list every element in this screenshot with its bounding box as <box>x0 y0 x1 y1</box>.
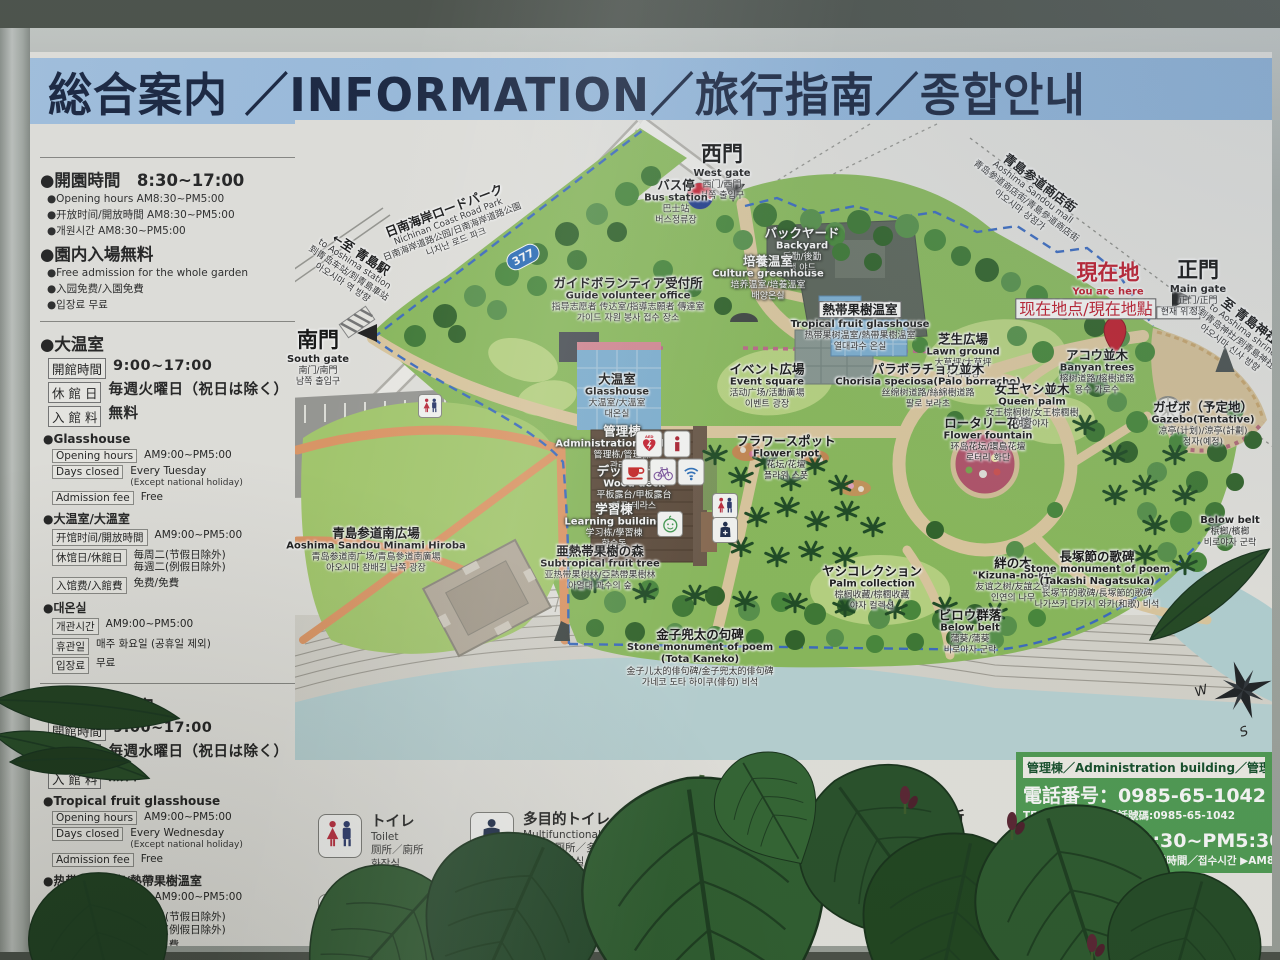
sidebar-kv-label: 休 館 日 <box>48 744 101 765</box>
sidebar-kv-value: AM9:00~PM5:00 <box>155 529 243 542</box>
sidebar-kv-label: 入 館 料 <box>48 768 101 789</box>
sidebar-kv-value: 免费/免費 <box>134 577 180 590</box>
sidebar-kv-row: 入馆费/入館費免费/免費 <box>52 577 296 594</box>
legend-en: Café <box>711 831 764 845</box>
sidebar-kv-value-line: 무료 <box>96 657 115 670</box>
sidebar-kv-row: 开馆时间/開放時間AM9:00~PM5:00 <box>52 891 296 908</box>
legend-text: カフェCafé餐厅／餐廳카페 <box>711 814 764 872</box>
bus-stop-logo <box>687 183 713 209</box>
sidebar-kv-label: 休馆日/休館日 <box>52 549 127 566</box>
sidebar-kv-row: Opening hoursAM9:00~PM5:00 <box>52 449 296 463</box>
sidebar-kv-label: Days closed <box>52 827 123 841</box>
legend-jp: ベビーベッド <box>371 894 458 911</box>
legend-kr: 카페 <box>711 858 764 872</box>
gazebo-icon <box>1155 397 1181 423</box>
sidebar-divider <box>40 683 296 684</box>
sidebar-heading: ●대온실 <box>43 599 296 616</box>
sidebar-kv-value-line: 免费/免費 <box>134 577 180 590</box>
sidebar-kv-row: 개관시간AM9:00~PM5:00 <box>52 618 296 635</box>
sidebar-kv-row: Days closedEvery Wednesday(Except nation… <box>52 827 296 850</box>
legend-item-cafe: カフェCafé餐厅／餐廳카페 <box>658 814 764 872</box>
sidebar-kv-value-line: 無料 <box>108 406 138 423</box>
legend-cn: 餐厅／餐廳 <box>711 844 764 858</box>
sidebar-kv-value-line: 매주 화요일 (공휴일 제외) <box>96 638 211 651</box>
sidebar-kv-value-line: AM9:00~PM5:00 <box>106 618 194 631</box>
sidebar-kv-value: AM9:00~PM5:00 <box>144 449 232 462</box>
sidebar-kv-row: 入 館 料無料 <box>48 768 296 789</box>
baby-icon <box>318 894 362 938</box>
sidebar-kv-value-line2: 毎週二(例假日除外) <box>134 561 226 574</box>
sidebar-kv-label: 入馆费/入館費 <box>52 577 127 594</box>
manager-note: 管理者：宮崎県 管理员／管理員 관리자 <box>1040 862 1142 898</box>
sidebar-kv-label: Opening hours <box>52 449 137 463</box>
sidebar-kv-value-line: 9:00~17:00 <box>113 720 212 737</box>
legend-text: トイレToilet厕所／廁所화장실 <box>371 814 424 872</box>
sidebar-kv-row: 休馆日/休館日毎周三(节假日除外)毎週三(例假日除外) <box>52 911 296 936</box>
sidebar-kv-value-line2: 毎週三(例假日除外) <box>134 924 226 937</box>
legend-cn: 多用途厕所／多用途廁所 <box>523 842 639 856</box>
sidebar-kv-value: Every Wednesday(Except national holiday) <box>130 827 243 850</box>
legend-en: Toilet <box>371 831 424 845</box>
manager-line2: 管理员／管理員 <box>1054 883 1142 898</box>
sidebar-kv-value: Free <box>141 853 163 866</box>
sidebar-kv-label: 開館時間 <box>48 720 106 741</box>
sidebar-heading: ●大温室 <box>40 331 296 355</box>
sidebar-kv-value: Free <box>141 491 163 504</box>
legend-cn: AED设施／AED設施 <box>873 840 969 854</box>
legend-jp: カフェ <box>711 814 764 831</box>
sidebar-kv-value: AM9:00~PM5:00 <box>144 811 232 824</box>
sidebar-kv-value-line: 9:00~17:00 <box>113 358 212 375</box>
sidebar-subline: ●开放时间/開放時間 AM8:30~PM5:00 <box>47 207 296 222</box>
sidebar-kv-value-line: 毎週水曜日（祝日は除く） <box>108 744 288 761</box>
svg-text:AED: AED <box>645 435 654 439</box>
sidebar-kv-value: 9:00~17:00 <box>113 358 212 375</box>
contact-hours: 受付時間 AM8:30~PM5:30 <box>1023 826 1265 853</box>
sidebar-kv-row: 입장료무료 <box>52 657 296 674</box>
legend-cn: 婴儿床／嬰兒床 <box>371 924 458 938</box>
legend-kr: 자동제세동기 <box>873 854 969 868</box>
sidebar-subline: ●Opening hours AM8:30~PM5:00 <box>47 193 296 205</box>
legend-item-wifi: Wi-FiスポットWi-Fi spotWi-Fi 设施／Wi-Fi 設施Wi-F… <box>624 894 786 946</box>
legend-text: Wi-FiスポットWi-Fi spotWi-Fi 设施／Wi-Fi 設施Wi-F… <box>677 894 786 946</box>
title-band: 総合案内 ／INFORMATION／旅行指南／종합안내 <box>30 58 1272 124</box>
sidebar-divider <box>40 321 296 322</box>
sidebar-kv-value: AM9:00~PM5:00 <box>155 891 243 904</box>
sidebar-subline: ●Free admission for the whole garden <box>47 267 296 279</box>
legend-kr: Wi-Fi 존 <box>677 938 786 946</box>
sidebar-kv-value: 毎周二(节假日除外)毎週二(例假日除外) <box>134 549 226 574</box>
sidebar-kv-label: 开馆时间/開放時間 <box>52 529 148 546</box>
sidebar-kv-row: 休 館 日毎週火曜日（祝日は除く） <box>48 382 296 403</box>
sidebar-kv-value: AM9:00~PM5:00 <box>106 618 194 631</box>
cafe-icon <box>658 814 702 858</box>
sidebar-heading: ●热带果树温室/熱帶果樹溫室 <box>43 872 296 889</box>
manager-line: 管理者：宮崎県 <box>1040 862 1142 883</box>
sidebar-divider <box>40 157 296 158</box>
legend-text: ベビーベッドBaby crib婴儿床／嬰兒床유아용 침대 <box>371 894 458 946</box>
sidebar-kv-row: Admission feeFree <box>52 853 296 867</box>
aed-icon: AED <box>636 431 663 458</box>
bicycle-icon <box>470 894 514 938</box>
sidebar-kv-label: Days closed <box>52 465 123 479</box>
sidebar-kv-label: Admission fee <box>52 491 134 505</box>
bicycle-icon <box>650 459 677 486</box>
sidebar-subline: ●입장료 무료 <box>47 297 296 312</box>
sidebar-kv-row: Admission feeFree <box>52 491 296 505</box>
sidebar-heading: ●熱帯果樹温室 <box>40 693 296 717</box>
sidebar-kv-row: Days closedEvery Tuesday(Except national… <box>52 465 296 488</box>
sidebar-kv-label: 休馆日/休館日 <box>52 911 127 928</box>
hours-sidebar: ●開園時間 8:30~17:00●Opening hours AM8:30~PM… <box>40 148 296 946</box>
contact-phone: 電話番号：0985-65-1042 <box>1023 781 1265 808</box>
legend-kr: 유아용 침대 <box>371 938 458 946</box>
legend-jp: AED設置場所 <box>873 810 969 827</box>
page-title: 総合案内 ／INFORMATION／旅行指南／종합안내 <box>48 57 1086 124</box>
legend-kr: 화장실 <box>371 858 424 872</box>
sidebar-kv-row: 休 館 日毎週水曜日（祝日は除く） <box>48 744 296 765</box>
legend-en: Wi-Fi spot <box>677 911 786 925</box>
legend-kr: 자전거 대여 <box>523 938 639 946</box>
sidebar-kv-row: 入馆费/入館費免费/免費 <box>52 939 296 946</box>
sidebar-kv-row: 開館時間9:00~17:00 <box>48 720 296 741</box>
sidebar-kv-note: (Except national holiday) <box>130 478 243 489</box>
sidebar-kv-value-line: AM9:00~PM5:00 <box>144 449 232 462</box>
sidebar-kv-label: 開館時間 <box>48 358 106 379</box>
sidebar-kv-label: 入 館 料 <box>48 406 101 427</box>
sidebar-subline: ●개원시간 AM8:30~PM5:00 <box>47 223 296 238</box>
photo-of-information-board: 総合案内 ／INFORMATION／旅行指南／종합안내 ●開園時間 8:30~1… <box>0 0 1280 960</box>
sidebar-kv-label: Admission fee <box>52 853 134 867</box>
rotary-flowerbed-art <box>953 432 1017 496</box>
sidebar-kv-note: (Except national holiday) <box>130 840 243 851</box>
legend-en: Baby crib <box>371 911 458 925</box>
legend-item-multi-toilet: 多目的トイレMultifunctional toilet多用途厕所／多用途廁所다… <box>470 812 639 870</box>
sidebar-kv-value: 9:00~17:00 <box>113 720 212 737</box>
sidebar-kv-value-line: AM9:00~PM5:00 <box>144 811 232 824</box>
sidebar-kv-label: 入馆费/入館費 <box>52 939 127 946</box>
legend-jp: レンタサイクル <box>523 894 639 911</box>
sidebar-kv-row: 休馆日/休館日毎周二(节假日除外)毎週二(例假日除外) <box>52 549 296 574</box>
legend-en: Multifunctional toilet <box>523 829 639 843</box>
sidebar-kv-row: Opening hoursAM9:00~PM5:00 <box>52 811 296 825</box>
park-map: 377 W S <box>295 120 1272 760</box>
multi-toilet-icon <box>470 812 514 856</box>
sidebar-section: ●熱帯果樹温室開館時間9:00~17:00休 館 日毎週水曜日（祝日は除く）入 … <box>40 693 296 946</box>
legend-kr: 다목적 화장실 <box>523 856 639 870</box>
aed-icon: AED <box>820 810 864 854</box>
svg-text:AED: AED <box>835 816 849 823</box>
legend-cn: 厕所／廁所 <box>371 844 424 858</box>
sidebar-kv-value-line: 毎周三(节假日除外) <box>134 911 226 924</box>
sidebar-kv-value-line: Every Tuesday <box>130 465 243 478</box>
sidebar-heading: ●園内入場無料 <box>40 241 296 265</box>
legend-en: AED <box>873 827 969 841</box>
sidebar-kv-value: 무료 <box>96 657 115 670</box>
legend-cn: 出租脚踏车／出租腳踏車 <box>523 924 639 938</box>
sidebar-kv-value: 免费/免費 <box>134 939 180 946</box>
legend-item-toilet: トイレToilet厕所／廁所화장실 <box>318 814 424 872</box>
sidebar-kv-label: Opening hours <box>52 811 137 825</box>
sidebar-kv-value-line: Free <box>141 853 163 866</box>
sidebar-kv-value-line: 免费/免費 <box>134 939 180 946</box>
sidebar-kv-value: 無料 <box>108 768 138 785</box>
sidebar-kv-value: Every Tuesday(Except national holiday) <box>130 465 243 488</box>
sidebar-kv-value-line: 無料 <box>108 768 138 785</box>
sidebar-heading: ●Glasshouse <box>43 432 296 446</box>
sidebar-heading: ●Tropical fruit glasshouse <box>43 794 296 808</box>
contact-phone-multi: TEL／电话号码／電話號碼:0985-65-1042 <box>1023 808 1265 823</box>
info-icon <box>664 431 691 458</box>
information-board: 総合案内 ／INFORMATION／旅行指南／종합안내 ●開園時間 8:30~1… <box>30 52 1272 946</box>
contact-header: 管理棟／Administration building／管理栋／管理棟／관리동 <box>1023 757 1265 778</box>
legend-cn: Wi-Fi 设施／Wi-Fi 設施 <box>677 924 786 938</box>
sidebar-kv-value-line: 毎周二(节假日除外) <box>134 549 226 562</box>
sidebar-kv-row: 开馆时间/開放時間AM9:00~PM5:00 <box>52 529 296 546</box>
sidebar-kv-value: 毎週火曜日（祝日は除く） <box>108 382 288 399</box>
toilet-icon <box>712 493 738 519</box>
legend-item-baby: ベビーベッドBaby crib婴儿床／嬰兒床유아용 침대 <box>318 894 458 946</box>
multi-toilet-icon <box>712 517 738 543</box>
contact-box: 管理棟／Administration building／管理栋／管理棟／관리동 … <box>1016 752 1272 873</box>
sidebar-kv-value-line: 毎週火曜日（祝日は除く） <box>108 382 288 399</box>
toilet-icon <box>418 394 442 418</box>
legend-text: レンタサイクルBicycle Rental出租脚踏车／出租腳踏車자전거 대여 <box>523 894 639 946</box>
sidebar-kv-value-line: AM9:00~PM5:00 <box>155 529 243 542</box>
sidebar-section: ●大温室開館時間9:00~17:00休 館 日毎週火曜日（祝日は除く）入 館 料… <box>40 331 296 674</box>
legend-text: 多目的トイレMultifunctional toilet多用途厕所／多用途廁所다… <box>523 812 639 870</box>
sidebar-heading: ●開園時間 8:30~17:00 <box>40 167 296 191</box>
legend-jp: Wi-Fiスポット <box>677 894 786 911</box>
legend-en: Bicycle Rental <box>523 911 639 925</box>
sidebar-kv-row: 入 館 料無料 <box>48 406 296 427</box>
sidebar-heading: ●大温室/大溫室 <box>43 510 296 527</box>
sidebar-kv-value-line: AM9:00~PM5:00 <box>155 891 243 904</box>
sidebar-kv-label: 휴관일 <box>52 638 89 655</box>
sidebar-subline: ●入园免费/入園免費 <box>47 281 296 296</box>
sidebar-kv-label: 休 館 日 <box>48 382 101 403</box>
sidebar-kv-label: 입장료 <box>52 657 89 674</box>
sidebar-kv-label: 开馆时间/開放時間 <box>52 891 148 908</box>
baby-icon <box>657 511 683 537</box>
sidebar-section: ●開園時間 8:30~17:00●Opening hours AM8:30~PM… <box>40 167 296 238</box>
wifi-icon <box>624 894 668 938</box>
sidebar-kv-value-line: Free <box>141 491 163 504</box>
legend-text: AED設置場所AEDAED设施／AED設施자동제세동기 <box>873 810 969 868</box>
wifi-icon <box>678 459 705 486</box>
sidebar-kv-value: 毎週水曜日（祝日は除く） <box>108 744 288 761</box>
legend-item-aed: AEDAED設置場所AEDAED设施／AED設施자동제세동기 <box>820 810 969 868</box>
sidebar-kv-row: 휴관일매주 화요일 (공휴일 제외) <box>52 638 296 655</box>
legend-jp: 多目的トイレ <box>523 812 639 829</box>
sidebar-section: ●園内入場無料●Free admission for the whole gar… <box>40 241 296 312</box>
sidebar-kv-value: 無料 <box>108 406 138 423</box>
sidebar-kv-value: 매주 화요일 (공휴일 제외) <box>96 638 211 651</box>
cafe-icon <box>622 459 649 486</box>
legend-jp: トイレ <box>371 814 424 831</box>
toilet-icon <box>318 814 362 858</box>
legend-item-bicycle: レンタサイクルBicycle Rental出租脚踏车／出租腳踏車자전거 대여 <box>470 894 639 946</box>
sidebar-kv-row: 開館時間9:00~17:00 <box>48 358 296 379</box>
sidebar-kv-value-line: Every Wednesday <box>130 827 243 840</box>
manager-line3: 관리자 <box>1208 884 1218 929</box>
sidebar-kv-label: 개관시간 <box>52 618 99 635</box>
sidebar-kv-value: 毎周三(节假日除外)毎週三(例假日除外) <box>134 911 226 936</box>
